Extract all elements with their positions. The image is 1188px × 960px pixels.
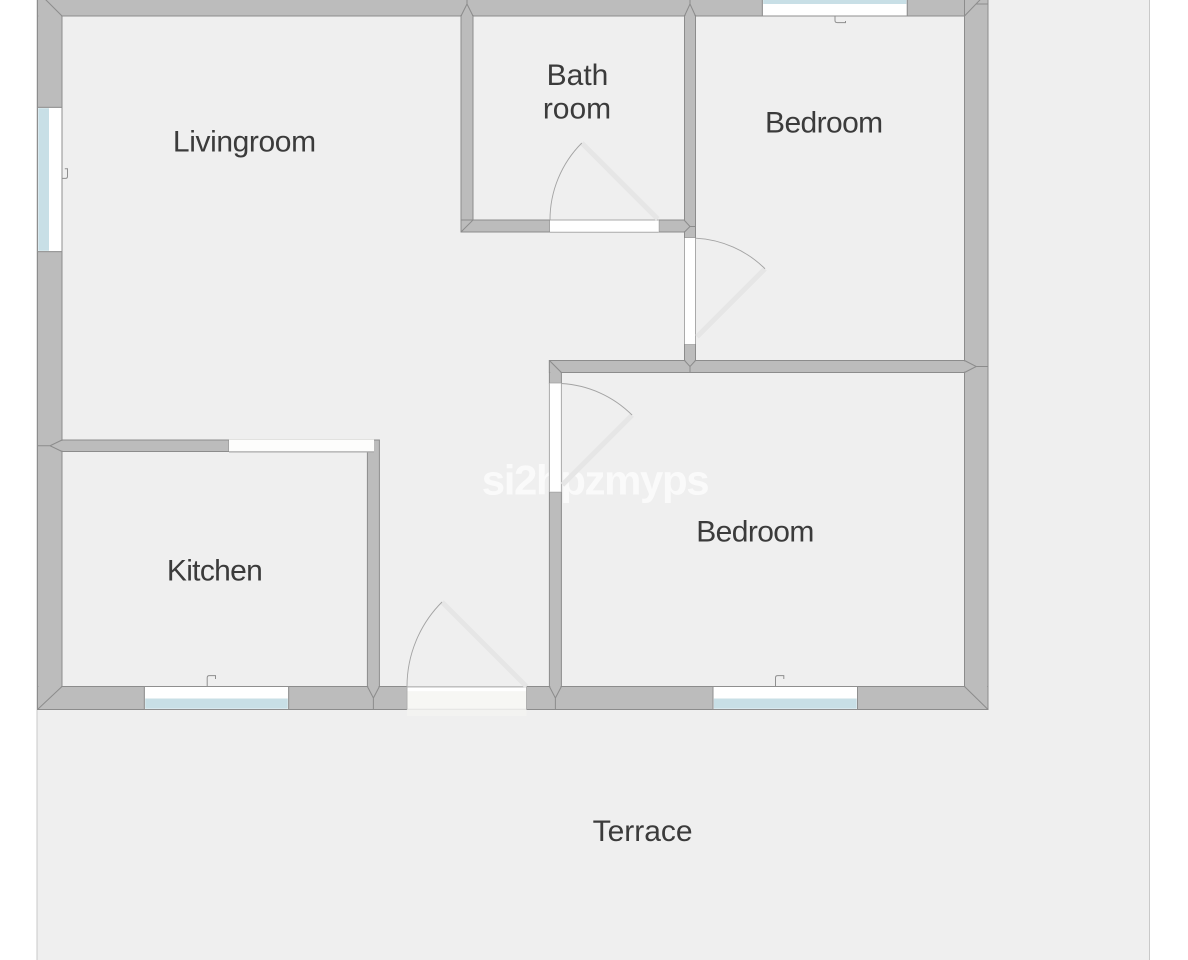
svg-text:si2hpzmyps: si2hpzmyps (482, 456, 708, 503)
svg-text:Livingroom: Livingroom (173, 125, 316, 158)
svg-text:Bedroom: Bedroom (696, 516, 814, 549)
svg-text:Terrace: Terrace (593, 815, 693, 848)
svg-text:room: room (543, 92, 611, 125)
svg-text:Kitchen: Kitchen (167, 554, 262, 587)
svg-text:Bath: Bath (547, 59, 609, 92)
svg-text:Bedroom: Bedroom (765, 107, 883, 140)
